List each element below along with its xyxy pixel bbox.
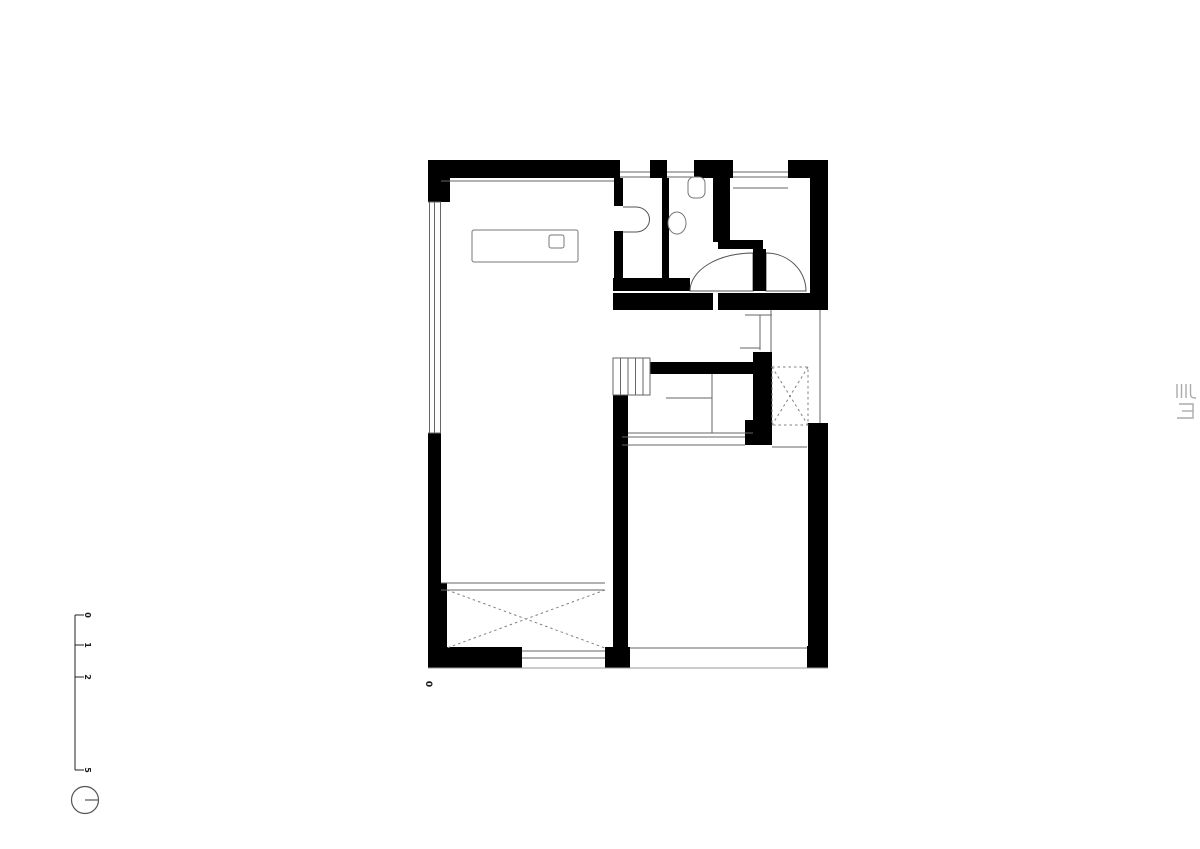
wall-entry-upper — [614, 178, 623, 206]
wall-bottom-a — [447, 647, 522, 668]
wall-bath-south — [613, 278, 690, 291]
studio-logo-icon — [1177, 384, 1196, 418]
scale-label-2: 2 — [83, 674, 92, 680]
scale-bar — [75, 615, 84, 770]
double-door-right-leaf — [766, 253, 806, 291]
wall-top-a — [428, 160, 620, 178]
wall-left-low — [428, 583, 447, 668]
level-marker-label: 0 — [423, 681, 433, 687]
wall-top-b — [650, 160, 667, 178]
double-door-post — [753, 249, 766, 291]
wall-bottom-pier — [605, 647, 630, 668]
wall-bedroom-south — [718, 293, 810, 310]
wall-right-upper — [810, 160, 828, 310]
wall-top-c — [694, 160, 733, 178]
table-icon — [472, 230, 578, 262]
fixtures — [472, 177, 705, 262]
floorplan-canvas: 0 0 1 2 5 — [0, 0, 1200, 849]
wall-bath-bedroom — [713, 178, 730, 242]
void-hatch-small — [772, 367, 808, 425]
scale-label-0: 0 — [83, 612, 92, 618]
wall-left-mid — [428, 433, 441, 585]
floor-plan-sheet: 0 0 1 2 5 — [0, 0, 1200, 849]
toilet-icon — [688, 177, 705, 198]
entry-door-swing — [623, 207, 650, 232]
scale-bar-labels: 0 1 2 5 — [83, 612, 92, 773]
scale-label-5: 5 — [83, 767, 92, 773]
wall-bath-divider — [662, 178, 669, 283]
wall-right-lower — [808, 423, 828, 652]
orientation-circle-icon — [72, 787, 99, 814]
double-door-left-leaf — [690, 253, 753, 291]
wall-hall-west — [613, 395, 628, 647]
wall-hall-south — [613, 293, 713, 310]
wall-stair-horizontal — [650, 362, 753, 374]
wall-wc-horizontal — [718, 240, 763, 249]
scale-label-1: 1 — [83, 642, 92, 648]
sink-icon — [668, 212, 686, 234]
void-hatch-large — [447, 590, 605, 648]
stairs-icon — [613, 358, 650, 395]
